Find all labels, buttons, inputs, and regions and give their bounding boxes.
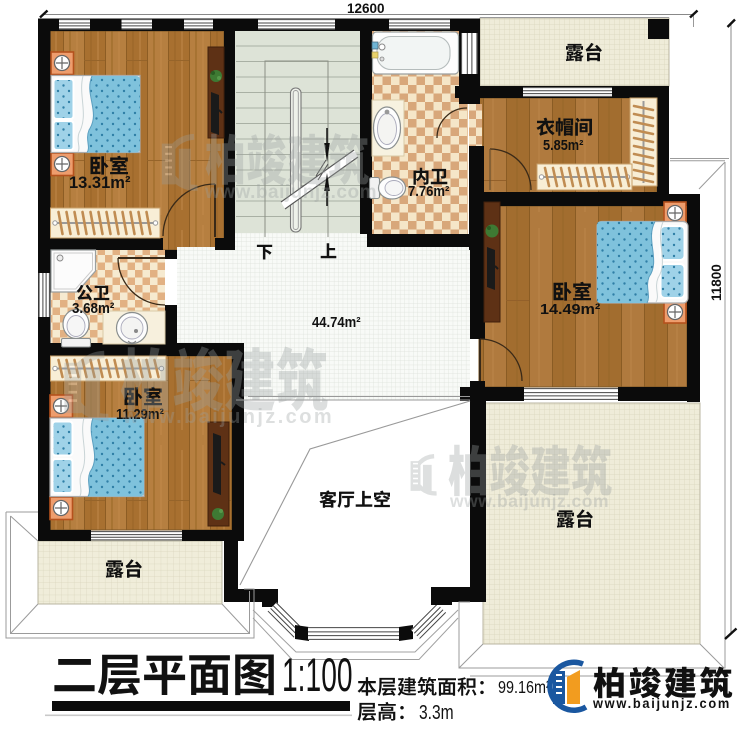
svg-text:13.31m²: 13.31m² (69, 174, 131, 192)
svg-text:14.49m²: 14.49m² (540, 302, 600, 318)
svg-text:11800: 11800 (709, 264, 724, 301)
svg-text:5.85m²: 5.85m² (543, 137, 584, 153)
svg-text:99.16m²: 99.16m² (498, 678, 551, 698)
svg-text:3.3m: 3.3m (419, 701, 454, 723)
svg-text:www.baijunjz.com: www.baijunjz.com (449, 491, 609, 511)
svg-text:7.76m²: 7.76m² (408, 183, 450, 199)
svg-text:www.baijunjz.com: www.baijunjz.com (592, 696, 731, 711)
svg-text:www.baijunjz.com: www.baijunjz.com (204, 182, 377, 203)
svg-text:1:100: 1:100 (282, 650, 353, 702)
svg-text:www.baijunjz.com: www.baijunjz.com (122, 406, 334, 428)
svg-text:44.74m²: 44.74m² (312, 314, 361, 330)
svg-text:12600: 12600 (347, 1, 385, 16)
svg-text:3.68m²: 3.68m² (72, 300, 115, 317)
